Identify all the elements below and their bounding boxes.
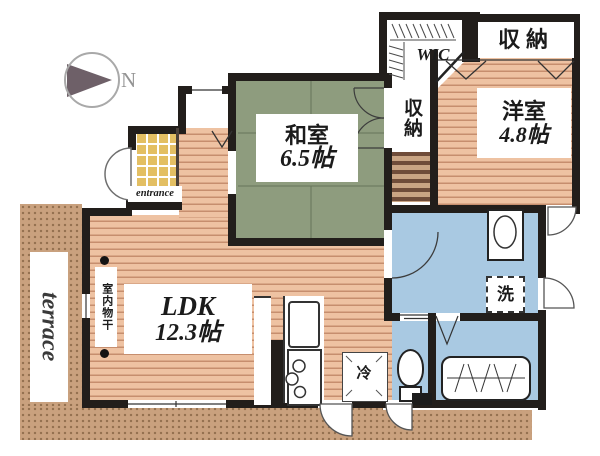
wall-segment — [384, 148, 392, 230]
room-name: 和室 — [285, 124, 329, 147]
tatami-door-opening — [228, 151, 236, 194]
wall-segment — [82, 208, 132, 216]
wall-segment — [379, 12, 387, 80]
kitchen-counter-front — [254, 296, 271, 405]
kitchen-sink — [288, 301, 320, 348]
entrance-text: entrance — [136, 188, 174, 199]
window-opening — [82, 294, 90, 318]
ldk-label: LDK 12.3帖 — [124, 284, 252, 354]
wall-segment — [228, 238, 392, 246]
wall-segment — [128, 134, 136, 150]
room-name: LDK — [161, 292, 215, 320]
wall-segment — [428, 313, 436, 403]
wall-segment — [538, 310, 546, 410]
wall-segment — [82, 208, 90, 294]
indoor-drying-label: 室内物干 — [95, 267, 117, 347]
toilet-bowl — [397, 349, 424, 387]
bathtub — [441, 356, 531, 401]
closet-top-label: 収納 — [478, 22, 574, 58]
room-size: 4.8帖 — [499, 123, 549, 146]
wall-segment — [460, 313, 538, 321]
room-size: 12.3帖 — [155, 321, 221, 346]
compass-north-label: N — [121, 68, 136, 93]
terrace-text: terrace — [36, 292, 61, 361]
wall-segment — [468, 14, 580, 22]
wall-segment — [412, 400, 546, 408]
closet-name: 収納 — [498, 28, 554, 51]
wall-segment — [379, 12, 471, 20]
wall-segment — [82, 318, 90, 408]
washer-text: 洗 — [497, 286, 514, 304]
closet-name: 収納 — [401, 98, 421, 138]
drying-hook-dot — [100, 349, 109, 358]
washbasin — [487, 209, 524, 261]
indoor-drying-text: 室内物干 — [100, 283, 112, 331]
room-name: 洋室 — [502, 100, 546, 123]
wall-segment — [228, 73, 390, 81]
entrance-label: entrance — [128, 186, 182, 202]
western-room-label: 洋室 4.8帖 — [477, 88, 571, 158]
window-opening — [128, 400, 226, 408]
wic-label: WIC — [404, 42, 462, 68]
washroom-door-opening — [384, 230, 392, 278]
exterior-door-opening — [546, 205, 572, 213]
wall-segment — [384, 313, 400, 321]
room-size: 6.5帖 — [280, 147, 334, 172]
terrace-label: terrace — [30, 252, 68, 402]
window-opening — [192, 86, 222, 94]
toilet-door-opening — [400, 313, 428, 321]
drying-hook-dot — [100, 256, 109, 265]
wic-text: WIC — [416, 46, 449, 64]
refrigerator-text: 冷 — [356, 367, 371, 383]
hall-floor — [179, 128, 231, 218]
wall-segment — [271, 340, 283, 403]
floor-plan: 和室 6.5帖 洋室 4.8帖 LDK 12.3帖 収納 収納 WIC 室内物干… — [0, 0, 600, 456]
toilet-cabinet — [412, 393, 432, 405]
wall-segment — [538, 205, 546, 278]
wall-segment — [178, 86, 192, 94]
wall-segment — [384, 278, 392, 313]
bath-door-opening — [436, 313, 460, 321]
washer-label: 洗 — [489, 280, 522, 309]
terrace-area-bottom — [20, 406, 532, 440]
stove — [287, 349, 322, 406]
closet-mid-label: 収納 — [392, 87, 430, 149]
washroom-exterior-door-fan — [544, 278, 574, 308]
wall-segment — [228, 73, 236, 151]
storage-shelf — [388, 152, 434, 202]
compass-icon — [64, 52, 120, 108]
refrigerator-label: 冷 — [350, 362, 378, 388]
wall-segment — [430, 50, 438, 206]
exterior-door-opening — [538, 278, 546, 310]
hall-closet — [184, 93, 228, 128]
closet-door-opening — [384, 88, 392, 148]
tatami-room-label: 和室 6.5帖 — [256, 114, 358, 182]
